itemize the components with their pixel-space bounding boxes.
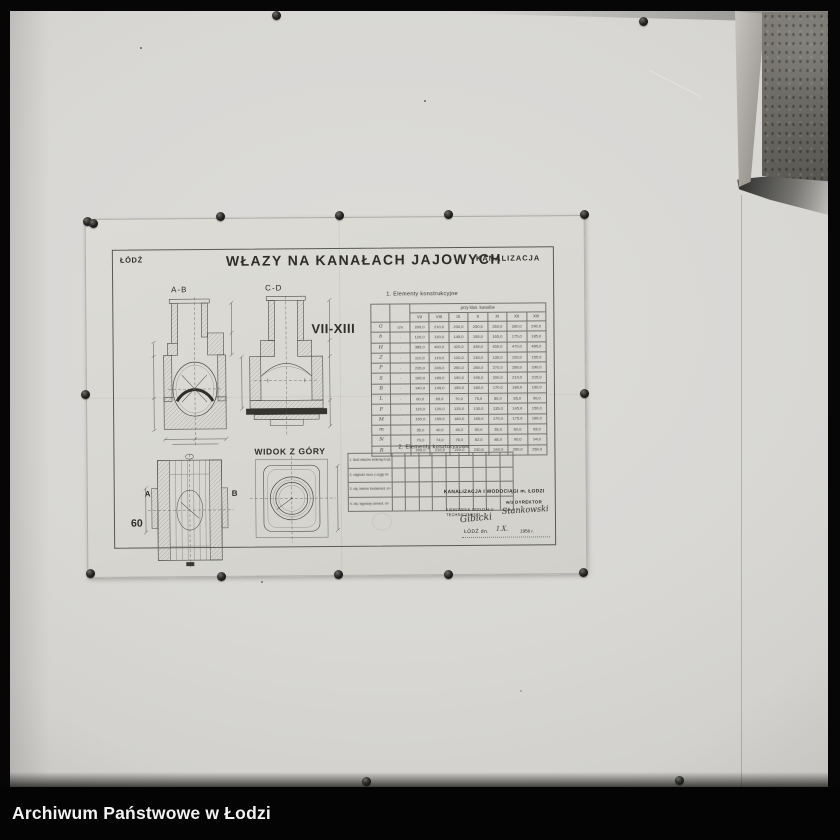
dust-speck bbox=[140, 47, 142, 49]
table1-corner bbox=[371, 304, 391, 322]
push-pin-icon bbox=[272, 11, 281, 20]
section-ab-label: A-B bbox=[171, 285, 187, 294]
table1-value-cell: 160,0 bbox=[449, 414, 469, 424]
table1-value-cell: 280,0 bbox=[507, 321, 527, 331]
table1-value-cell: 250,0 bbox=[468, 321, 488, 331]
table1-value-cell: 180,0 bbox=[527, 414, 547, 424]
table1-value-cell: 400,0 bbox=[429, 342, 449, 352]
archive-caption-bar: Archiwum Państwowe w Łodzi bbox=[0, 787, 840, 840]
table1-value-cell: 170,0 bbox=[488, 414, 508, 424]
table2-empty-cell bbox=[405, 453, 419, 468]
table1-unit: · bbox=[391, 415, 411, 425]
table1-value-cell: 70,0 bbox=[449, 394, 469, 404]
table1-row-label: Z bbox=[371, 353, 391, 363]
table2-empty-cell bbox=[486, 452, 500, 467]
table1-unit: · bbox=[391, 343, 411, 353]
table1-value-cell: 150,0 bbox=[527, 403, 547, 413]
table1-value-cell: 290,0 bbox=[526, 321, 546, 331]
table1-unit: · bbox=[391, 394, 411, 404]
table2-title: 2. Elementy kosztorysowe bbox=[398, 444, 469, 451]
table2-empty-cell bbox=[419, 482, 433, 497]
bottom-shadow bbox=[10, 772, 828, 787]
table2-row-label: 1. ilość włazów żeliwnych szt. bbox=[348, 453, 392, 468]
dust-speck bbox=[261, 581, 263, 583]
table1-value-cell: 170,0 bbox=[488, 383, 508, 393]
table1-value-cell: 150,0 bbox=[411, 414, 431, 424]
table1-column-header: XI bbox=[487, 312, 507, 321]
construction-elements-table: przy klas. kanałówVIIVIIIIXXXIXIIXIIIGcm… bbox=[370, 302, 547, 456]
table1-value-cell: 245,0 bbox=[430, 363, 450, 373]
table1-value-cell: 250,0 bbox=[449, 363, 469, 373]
table1-value-cell: 210,0 bbox=[429, 322, 449, 332]
table1-row-label: F bbox=[372, 404, 392, 414]
table1-unit: · bbox=[390, 332, 410, 342]
table1-value-cell: 86,0 bbox=[488, 434, 508, 444]
table2-empty-cell bbox=[419, 467, 433, 482]
table1-value-cell: 215,0 bbox=[527, 372, 547, 382]
table1-row-label: M bbox=[372, 415, 392, 425]
push-pin-icon bbox=[444, 570, 453, 579]
table1-value-cell: 455,0 bbox=[488, 342, 508, 352]
section-ab-drawing bbox=[143, 297, 236, 450]
table1-value-cell: 40,0 bbox=[430, 425, 450, 435]
table1-value-cell: 135,0 bbox=[488, 404, 508, 414]
table2-empty-cell bbox=[446, 467, 460, 482]
table1-value-cell: 160,0 bbox=[469, 383, 489, 393]
push-pin-icon bbox=[580, 210, 589, 219]
table1-value-cell: 185,0 bbox=[526, 331, 546, 341]
push-pin-icon bbox=[216, 212, 225, 221]
date-underline bbox=[462, 536, 550, 538]
table1-value-cell: 175,0 bbox=[507, 331, 527, 341]
table1-row-label: S bbox=[371, 374, 391, 384]
table1-value-cell: 280,0 bbox=[507, 362, 527, 372]
table1-value-cell: 385,0 bbox=[410, 342, 430, 352]
table2-empty-cell bbox=[392, 497, 406, 512]
table2-empty-cell bbox=[419, 497, 433, 512]
date-prefix: ŁÓDŹ dn. bbox=[464, 529, 489, 535]
table2-empty-cell bbox=[432, 453, 446, 468]
director-signature: Stankowski bbox=[502, 504, 549, 516]
table1-value-cell: 65,0 bbox=[527, 424, 547, 434]
table2-empty-cell bbox=[500, 467, 514, 482]
table1-unit: cm bbox=[390, 322, 410, 332]
push-pin-icon bbox=[579, 568, 588, 577]
table1-row-label: L bbox=[371, 394, 391, 404]
scratch-mark bbox=[649, 70, 701, 97]
table1-value-cell: 110,0 bbox=[410, 353, 430, 363]
table2-empty-cell bbox=[432, 467, 446, 482]
signature-block: KANALIZACJA I WODOCIĄGI m. ŁODZI w/z DYR… bbox=[444, 486, 564, 547]
push-pin-icon bbox=[334, 570, 343, 579]
table1-value-cell: 145,0 bbox=[508, 403, 528, 413]
table1-value-cell: 55,0 bbox=[488, 424, 508, 434]
table2-empty-cell bbox=[392, 482, 406, 497]
table2-empty-cell bbox=[406, 482, 420, 497]
push-pin-icon bbox=[89, 219, 98, 228]
table1-title: 1. Elementy konstrukcyjne bbox=[386, 291, 458, 298]
table1-value-cell: 75,0 bbox=[469, 393, 489, 403]
table1-value-cell: 65,0 bbox=[430, 394, 450, 404]
table2-row-label: 4. obj. wyprawy cement. m² bbox=[348, 497, 392, 512]
table2-empty-cell bbox=[406, 497, 420, 512]
table1-value-cell: 260,0 bbox=[468, 362, 488, 372]
table1-value-cell: 35,0 bbox=[411, 425, 431, 435]
table1-row-label: b bbox=[371, 332, 391, 342]
manager-signature: Gibicki bbox=[460, 512, 493, 525]
table1-value-cell: 155,0 bbox=[430, 414, 450, 424]
table1-value-cell: 190,0 bbox=[449, 373, 469, 383]
table1-column-header: X bbox=[468, 312, 488, 321]
table1-row-label: B bbox=[371, 384, 391, 394]
table1-value-cell: 185,0 bbox=[430, 373, 450, 383]
table1-value-cell: 60,0 bbox=[410, 394, 430, 404]
city-label: ŁÓDŹ bbox=[120, 256, 143, 265]
table1-row-label: G bbox=[371, 322, 391, 332]
table1-value-cell: 120,0 bbox=[410, 332, 430, 342]
section-cd-label: C-D bbox=[265, 283, 282, 292]
table2-empty-cell bbox=[392, 468, 406, 483]
table1-unit: · bbox=[391, 384, 411, 394]
table2-empty-cell bbox=[473, 467, 487, 482]
table2-empty-cell bbox=[486, 467, 500, 482]
table1-value-cell: 260,0 bbox=[527, 444, 547, 454]
table1-value-cell: 470,0 bbox=[507, 342, 527, 352]
table1-value-cell: 485,0 bbox=[527, 341, 547, 351]
table2-empty-cell bbox=[459, 467, 473, 482]
table2-empty-cell bbox=[499, 452, 513, 467]
wall-seam-line bbox=[741, 195, 742, 787]
table1-value-cell: 115,0 bbox=[429, 353, 449, 363]
table1-value-cell: 120,0 bbox=[430, 404, 450, 414]
table1-value-cell: 435,0 bbox=[468, 342, 488, 352]
table1-value-cell: 180,0 bbox=[410, 373, 430, 383]
table1-column-header: VII bbox=[410, 313, 430, 322]
table1-value-cell: 125,0 bbox=[449, 404, 469, 414]
top-view-label: WIDOK Z GÓRY bbox=[254, 446, 325, 457]
table1-value-cell: 230,0 bbox=[449, 321, 469, 331]
table1-value-cell: 130,0 bbox=[429, 332, 449, 342]
sheet-title: WŁAZY NA KANAŁACH JAJOWYCH bbox=[226, 251, 502, 269]
date-handwritten: 1.X. bbox=[496, 526, 508, 533]
table2-row-label: 2. objętość muru z cegły m³ bbox=[348, 468, 392, 483]
department-label: KANALIZACJA bbox=[476, 253, 540, 263]
photo-border-left bbox=[0, 0, 10, 840]
archive-name-label: Archiwum Państwowe w Łodzi bbox=[12, 803, 271, 824]
push-pin-icon bbox=[444, 210, 453, 219]
table2-empty-cell bbox=[446, 453, 460, 468]
table2-empty-cell bbox=[419, 453, 433, 468]
table1-value-cell: 60,0 bbox=[508, 424, 528, 434]
push-pin-icon bbox=[81, 390, 90, 399]
table1-column-header: XII bbox=[507, 312, 527, 321]
table1-value-cell: 82,0 bbox=[469, 435, 489, 445]
table1-value-cell: 420,0 bbox=[449, 342, 469, 352]
table1-value-cell: 270,0 bbox=[488, 362, 508, 372]
push-pin-icon bbox=[217, 572, 226, 581]
table1-row-label: N bbox=[372, 435, 392, 445]
table1-value-cell: 165,0 bbox=[488, 331, 508, 341]
table1-value-cell: 155,0 bbox=[527, 352, 547, 362]
dust-speck bbox=[520, 690, 522, 692]
push-pin-icon bbox=[86, 569, 95, 578]
photo-border-top bbox=[0, 0, 840, 11]
table1-unit: · bbox=[391, 373, 411, 383]
table2-empty-cell bbox=[392, 453, 406, 468]
table1-column-header: IX bbox=[449, 312, 469, 321]
table1-value-cell: 190,0 bbox=[527, 383, 547, 393]
wall-shade bbox=[10, 11, 50, 787]
table1-value-cell: 145,0 bbox=[430, 383, 450, 393]
table1-unit: · bbox=[391, 425, 411, 435]
table2-empty-cell bbox=[405, 467, 419, 482]
table1-value-cell: 85,0 bbox=[508, 393, 528, 403]
table1-value-cell: 150,0 bbox=[507, 352, 527, 362]
push-pin-icon bbox=[675, 776, 684, 785]
table1-value-cell: 145,0 bbox=[449, 332, 469, 342]
push-pin-icon bbox=[362, 777, 371, 786]
table1-corner bbox=[390, 304, 410, 322]
table1-value-cell: 130,0 bbox=[468, 352, 488, 362]
organization-name: KANALIZACJA I WODOCIĄGI m. ŁODZI bbox=[444, 489, 545, 495]
section-cd-drawing bbox=[237, 296, 335, 442]
table1-value-cell: 180,0 bbox=[507, 383, 527, 393]
table1-value-cell: 80,0 bbox=[488, 393, 508, 403]
photo-border-right bbox=[828, 0, 840, 840]
push-pin-icon bbox=[580, 389, 589, 398]
dust-speck bbox=[424, 100, 426, 102]
table1-value-cell: 200,0 bbox=[410, 322, 430, 332]
table1-unit: · bbox=[391, 404, 411, 414]
table1-row-label: H bbox=[371, 343, 391, 353]
table1-value-cell: 120,0 bbox=[449, 352, 469, 362]
table1-value-cell: 165,0 bbox=[469, 414, 489, 424]
table1-value-cell: 290,0 bbox=[527, 362, 547, 372]
table1-value-cell: 115,0 bbox=[410, 404, 430, 414]
push-pin-icon bbox=[335, 211, 344, 220]
table2-empty-cell bbox=[459, 452, 473, 467]
table1-value-cell: 235,0 bbox=[410, 363, 430, 373]
paper-stain bbox=[372, 513, 392, 531]
table1-value-cell: 200,0 bbox=[488, 373, 508, 383]
table1-value-cell: 155,0 bbox=[468, 332, 488, 342]
table1-value-cell: 260,0 bbox=[488, 321, 508, 331]
technical-drawing-sheet: ŁÓDŹ WŁAZY NA KANAŁACH JAJOWYCH KANALIZA… bbox=[85, 215, 588, 578]
table1-value-cell: 90,0 bbox=[527, 393, 547, 403]
table1-value-cell: 210,0 bbox=[507, 372, 527, 382]
table2-empty-cell bbox=[473, 452, 487, 467]
table1-unit: · bbox=[391, 363, 411, 373]
table1-value-cell: 135,0 bbox=[488, 352, 508, 362]
stone-block-front-face bbox=[762, 12, 828, 194]
table2-row-label: 3. obj. betonu fundament. m³ bbox=[348, 482, 392, 497]
table1-value-cell: 90,0 bbox=[508, 434, 528, 444]
table1-value-cell: 50,0 bbox=[469, 424, 489, 434]
table1-column-header: XIII bbox=[526, 312, 546, 321]
table1-value-cell: 94,0 bbox=[527, 434, 547, 444]
plan-ab-drawing bbox=[139, 454, 242, 569]
table1-value-cell: 130,0 bbox=[469, 404, 489, 414]
archival-photograph: ŁÓDŹ WŁAZY NA KANAŁACH JAJOWYCH KANALIZA… bbox=[0, 0, 840, 840]
date-year: 1956 r. bbox=[520, 528, 534, 533]
table1-value-cell: 45,0 bbox=[449, 424, 469, 434]
table1-row-label: P bbox=[371, 363, 391, 373]
push-pin-icon bbox=[639, 17, 648, 26]
table1-value-cell: 175,0 bbox=[508, 414, 528, 424]
table1-value-cell: 155,0 bbox=[449, 383, 469, 393]
table1-unit: · bbox=[391, 353, 411, 363]
top-view-drawing bbox=[243, 456, 342, 545]
table1-column-header: VIII bbox=[429, 313, 449, 322]
table1-value-cell: 140,0 bbox=[410, 384, 430, 394]
table1-row-label: m bbox=[372, 425, 392, 435]
table1-value-cell: 195,0 bbox=[469, 373, 489, 383]
